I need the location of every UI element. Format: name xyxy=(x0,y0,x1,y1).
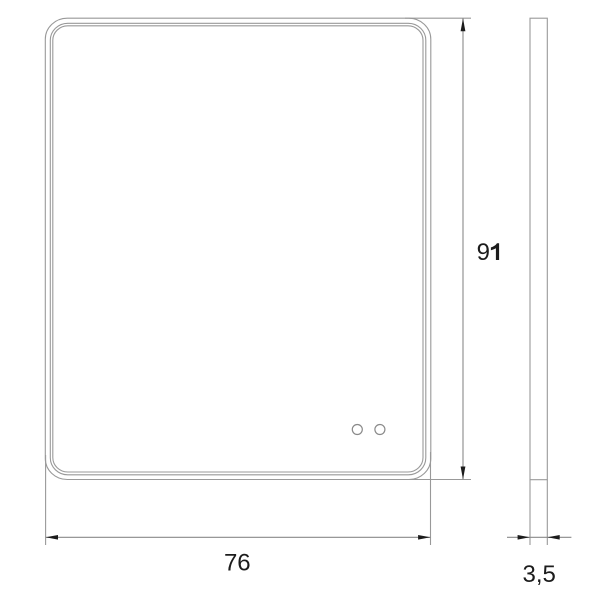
svg-text:3,5: 3,5 xyxy=(523,561,556,588)
svg-text:9: 9 xyxy=(477,239,490,266)
svg-text:76: 76 xyxy=(224,549,251,576)
